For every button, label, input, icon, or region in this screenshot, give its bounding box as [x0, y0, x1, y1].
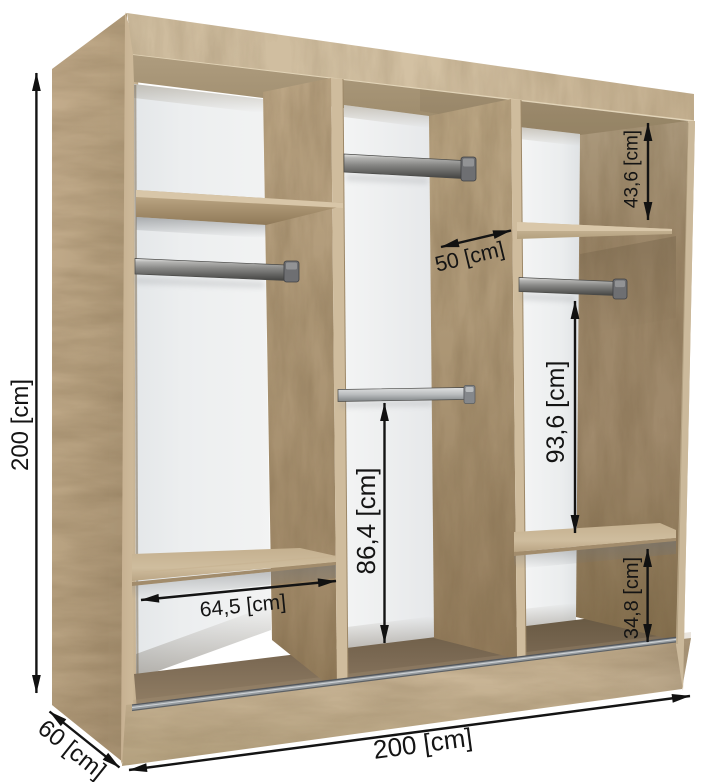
svg-text:34,8 [cm]: 34,8 [cm]: [621, 557, 643, 639]
svg-text:200 [cm]: 200 [cm]: [7, 379, 34, 471]
svg-text:43,6 [cm]: 43,6 [cm]: [622, 130, 643, 208]
svg-text:93,6 [cm]: 93,6 [cm]: [542, 361, 570, 464]
svg-text:86,4 [cm]: 86,4 [cm]: [351, 468, 381, 575]
